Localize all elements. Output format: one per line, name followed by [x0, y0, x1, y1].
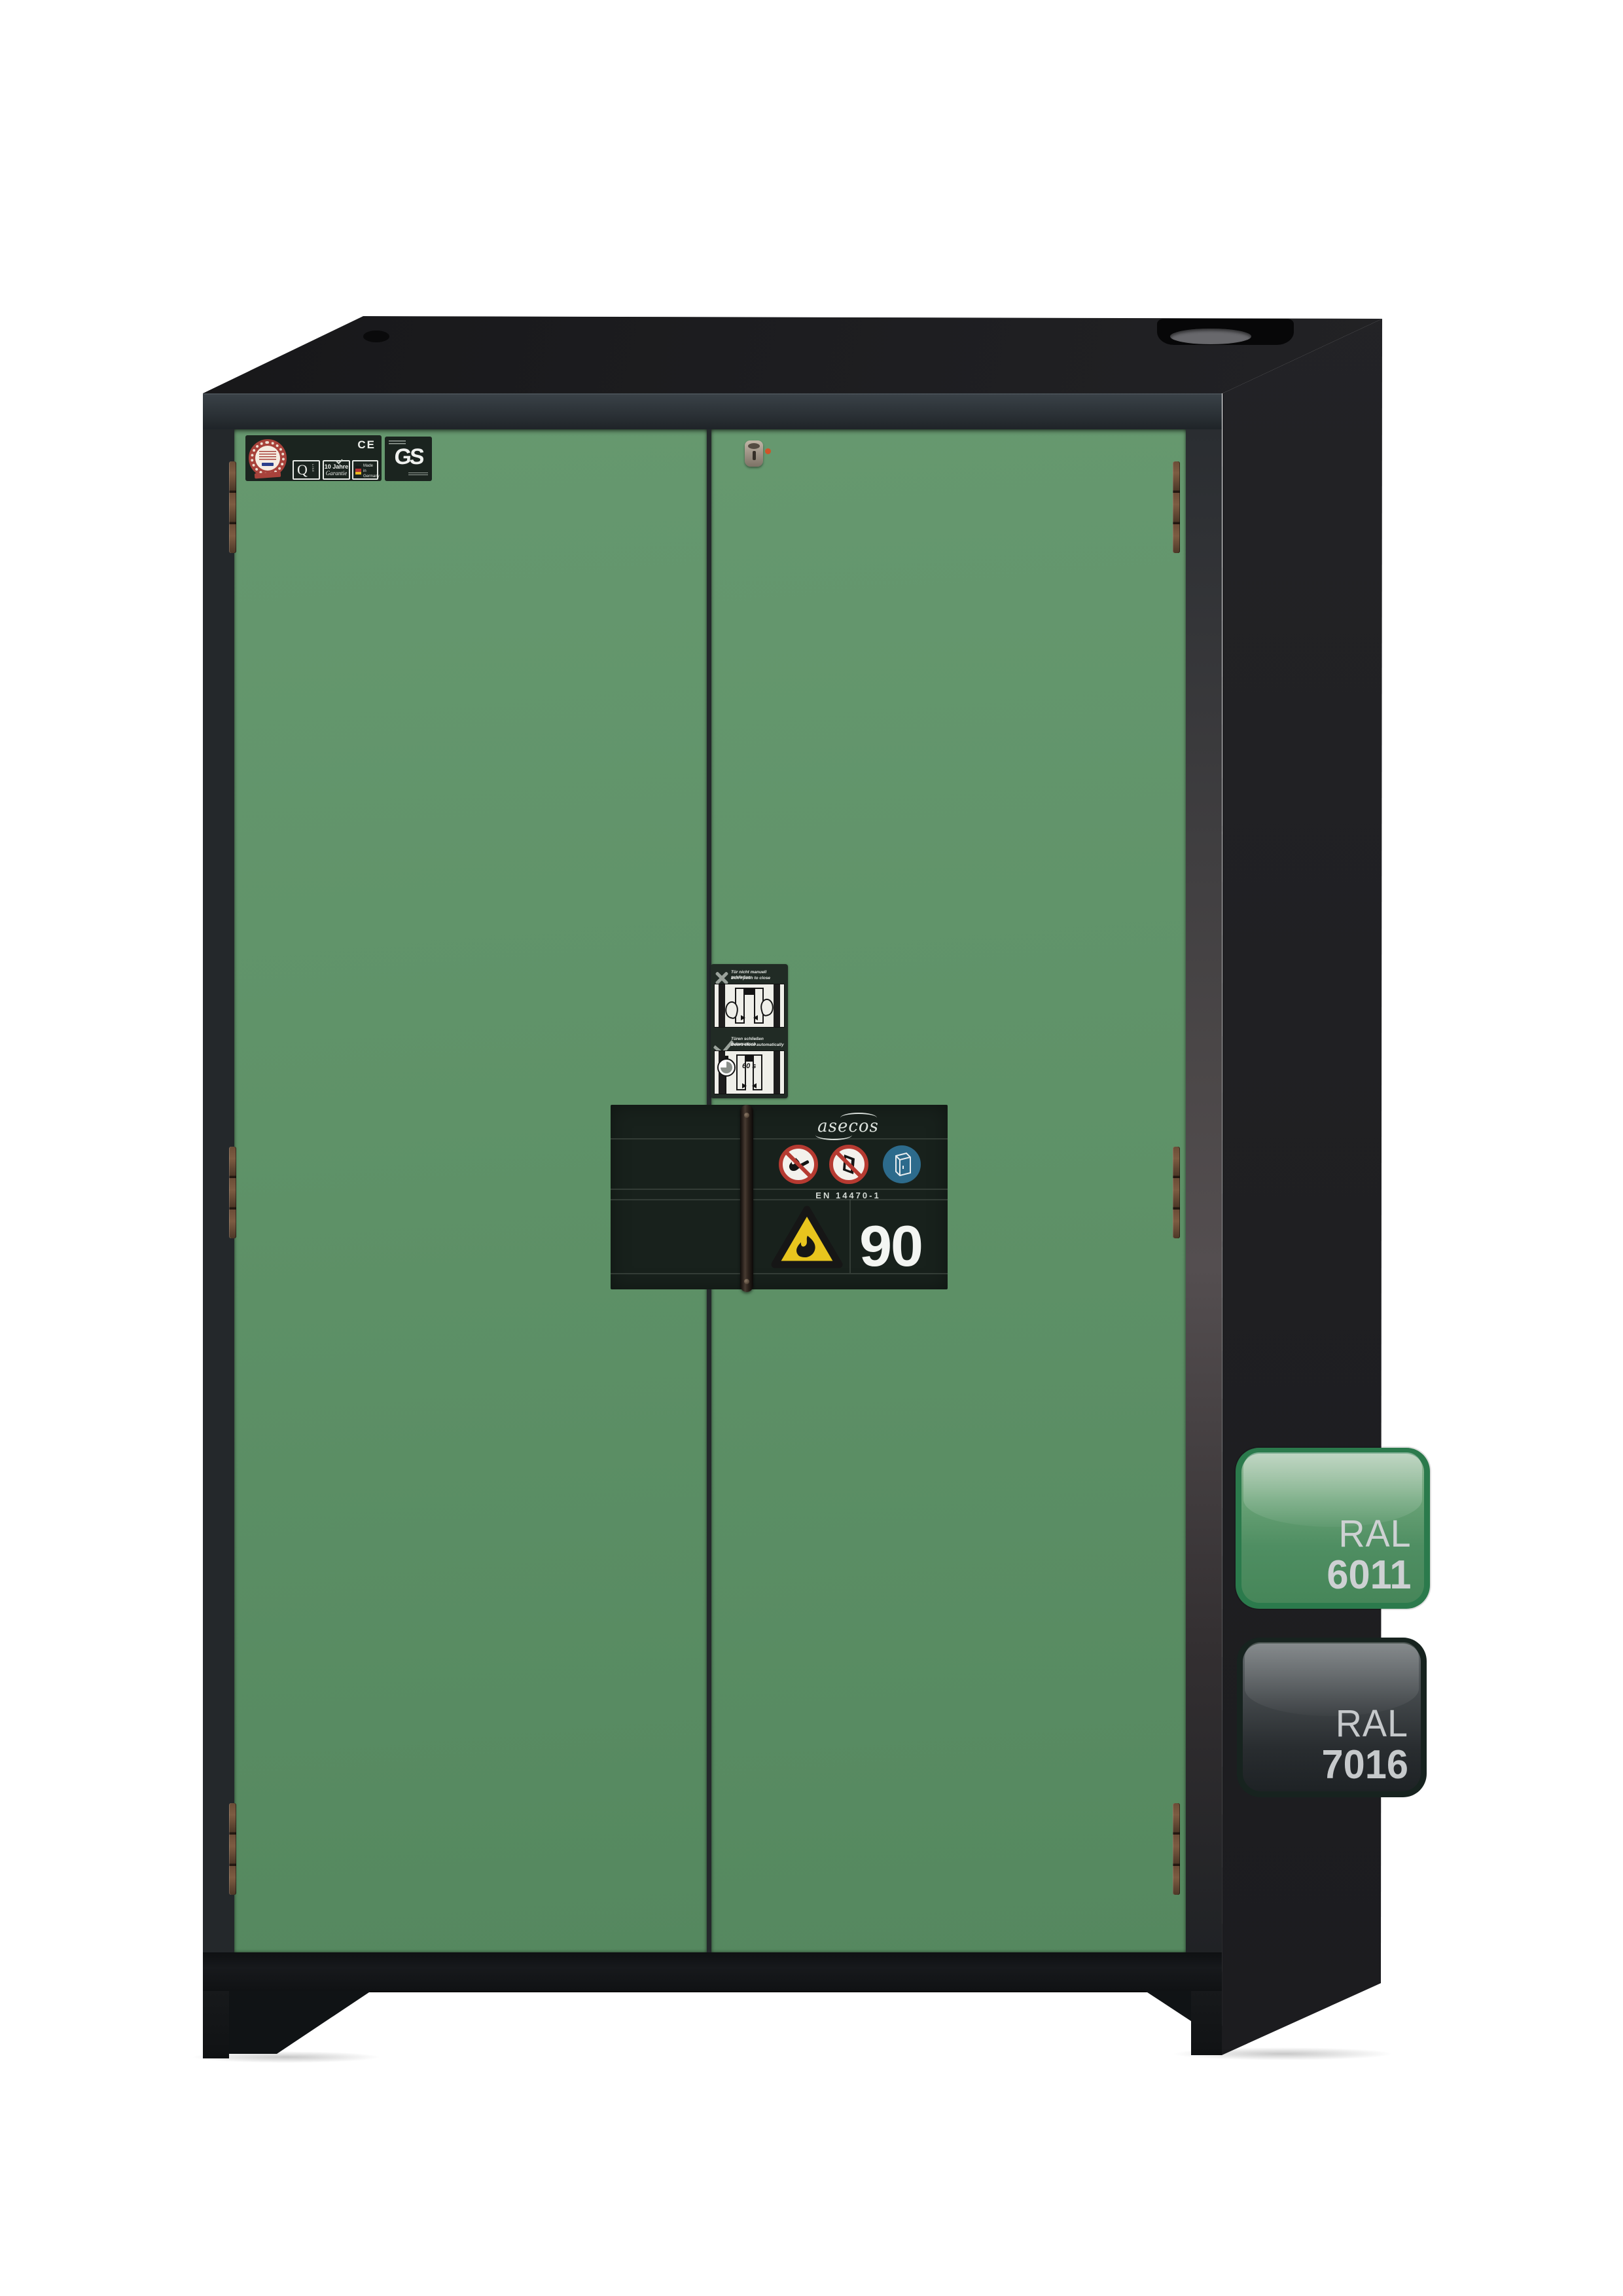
handle-screw: [744, 1113, 749, 1118]
door-hinge: [1173, 1147, 1180, 1238]
door-hinge: [1173, 1803, 1180, 1895]
top-vent-hole-small: [363, 331, 389, 342]
handle-screw: [744, 1279, 749, 1284]
auto-close-illustration: 60 s: [714, 1050, 785, 1094]
made-line: Germany: [363, 474, 380, 479]
dont-push-illustration: [714, 984, 785, 1028]
x-icon: [714, 971, 730, 985]
door-hinge: [229, 1147, 236, 1238]
made-line: in: [363, 469, 380, 474]
q-line-mark: Q LINE: [293, 460, 320, 480]
warranty-mark: 10 Jahre Garantie: [323, 460, 350, 480]
gs-micro-text: [408, 473, 428, 476]
ral-code: 6011: [1327, 1556, 1412, 1595]
stopwatch-icon: [717, 1058, 736, 1077]
warranty-word: Garantie: [324, 471, 349, 476]
floor-shadow: [1171, 2047, 1394, 2060]
q-line-sub: LINE: [312, 464, 315, 473]
fire-resistance-rating: 90: [853, 1217, 928, 1275]
vertical-door-handle: [740, 1105, 753, 1292]
auto-close-en: Doors close automatically: [731, 1043, 787, 1048]
door-closing-instruction-sticker: Tür nicht manuell schließen Don't push t…: [711, 964, 788, 1098]
dont-push-en: Don't push to close: [731, 976, 787, 981]
ral-label: RAL: [1327, 1515, 1412, 1553]
cabinet-plinth-band: [203, 1952, 1222, 1992]
color-badge-ral-6011: RAL 6011: [1236, 1448, 1430, 1609]
certification-label: Q LINE 10 Jahre Garantie Made in Germany…: [245, 435, 382, 481]
color-badge-ral-7016: RAL 7016: [1237, 1638, 1427, 1797]
seal-dot: [765, 448, 771, 454]
front-frame-right-stile: [1186, 429, 1222, 1952]
logo-arc: [815, 1130, 852, 1140]
door-hinge: [229, 1803, 236, 1895]
cabinet-left-foot: [203, 1991, 229, 2058]
flammable-warning-triangle-icon: [770, 1204, 844, 1270]
brand-logo: asecos: [809, 1114, 887, 1139]
ral-code: 7016: [1322, 1746, 1408, 1785]
stopwatch-stem: [725, 1076, 726, 1094]
made-line: Made: [363, 463, 380, 469]
logo-arc: [840, 1113, 877, 1123]
cabinet-right-foot: [1191, 1991, 1222, 2055]
cylinder-lock: [745, 440, 763, 467]
front-frame-top-rail: [203, 393, 1222, 429]
lock-cap: [748, 443, 760, 449]
door-hinge: [1173, 461, 1180, 553]
ral-label: RAL: [1322, 1705, 1408, 1743]
approval-seal-icon: [249, 439, 287, 477]
type-plate-label: asecos EN 14470-1 90: [611, 1105, 948, 1289]
keep-doors-closed-icon: [882, 1144, 922, 1185]
gs-certification-label: GS: [385, 437, 432, 481]
standard-number: EN 14470-1: [802, 1191, 894, 1200]
no-obstruction-icon: [829, 1144, 869, 1185]
seal-banner: [255, 472, 281, 479]
keyhole-slot: [753, 451, 756, 460]
gs-mark: GS: [384, 444, 433, 470]
ce-mark: CE: [357, 439, 376, 452]
seal-center: [255, 446, 280, 471]
no-open-flame-icon: [778, 1144, 819, 1185]
top-vent-duct-opening: [1170, 329, 1251, 344]
q-line-letter: Q: [297, 461, 308, 478]
door-hinge: [229, 461, 236, 553]
made-in-germany-mark: Made in Germany: [352, 460, 378, 480]
floor-shadow: [191, 2051, 381, 2063]
safety-cabinet-product-render: Q LINE 10 Jahre Garantie Made in Germany…: [0, 0, 1623, 2296]
german-flag-icon: [355, 466, 361, 475]
timer-value: 60 s: [742, 1062, 756, 1070]
